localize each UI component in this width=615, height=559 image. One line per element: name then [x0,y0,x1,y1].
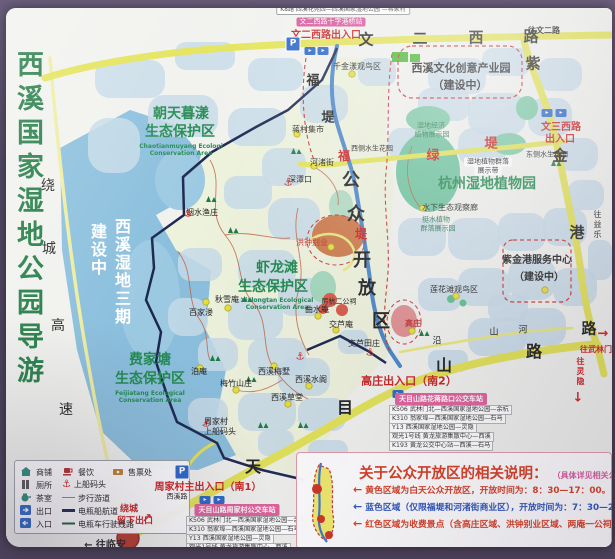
map-label-road: 区 [372,313,390,331]
entrance-exit-icon: ▸ [542,109,553,117]
map-label-place: 西溪水阁 [295,376,327,384]
legend-item-label: 出口 [36,506,52,517]
legend-item-label: 售票处 [128,467,152,478]
info-line-text: 红色区域为收费景点（含高庄区域、洪钟别业区域、两庵一公祠区域）。 [365,520,612,530]
map-label-place: 展示带 [475,167,502,176]
boat-dock-anchor-icon: ⚓ [366,348,375,359]
map-label-place: 泊庵 [191,368,207,376]
map-label-place: 西侧水生花园 [351,146,393,153]
map-label-road: 开 [353,252,371,270]
map-label-area: 朝天暮漾 [153,107,209,121]
map-label-road: 公 [342,172,360,190]
parking-icon: P [175,465,190,480]
map-label-area: 虾龙滩 [256,261,298,275]
map-poster: 西溪国家湿地公园导游图 文二西路往文二路紫金港路绿堤福堤福堤公众开放区天目山路沿… [6,8,612,547]
map-title: 西溪国家湿地公园导游图 [8,50,46,422]
entrance-exit-icon: ▸ [305,47,316,55]
boat-dock-anchor-icon: ⚓ [296,352,305,363]
map-label-place: 洪钟别业 [296,239,328,247]
legend-item-label: 电瓶车行驶线路 [78,519,134,530]
map-label-place: 西溪梅墅 [258,368,290,376]
map-label-place: 群落展示园 [421,226,456,233]
legend-item-label: 厕所 [36,480,52,491]
exit-icon [20,505,33,518]
map-label-place: 千金漾观鸟区 [333,63,381,71]
info-note: （具体详见相关公园公告） [553,471,612,480]
bus-station-header: 天目山路周家村公交车站 [195,504,280,516]
map-label-road: 路 [526,344,542,360]
legend-item: 入口 [20,518,52,531]
boat-dock-anchor-icon: ⚓ [202,419,211,430]
entrance-exit-icon: ▸ [200,496,211,504]
map-label-road: ↓ [573,392,584,405]
map-label-area: 杭州湿地植物园 [438,177,536,191]
map-label-road: 绿 [426,150,439,163]
map-label-area: Conservation Area [246,305,308,311]
map-label-place: 西溪草堂 [271,394,303,402]
map-label-gate: 高庄出入口（南2） [361,376,457,387]
entrance-exit-icon: ▸ [318,47,329,55]
map-label-gate: 周家村主出入口（南1） [155,483,262,493]
map-label-road: 往武林门 [580,346,612,354]
boat-dock-anchor-icon: ⚓ [184,209,193,220]
map-label-road: 福 [338,150,350,162]
info-line-text: 黄色区域为白天公众开放区，开放时间为：8：30—17：00。 [365,486,610,496]
map-label-place: 百家溇 [189,309,213,317]
map-label-road: 西 [468,31,483,46]
map-label-road: 路 [581,322,596,337]
ticket-icon [112,466,125,479]
bus-route-row: 观光1号线 黄龙旅游集散中心—西溪 [186,543,291,547]
info-arrow-icon: ← [353,517,362,530]
map-label-place: 湿地植物群落 [464,158,512,167]
map-label-area: 西溪文化创意产业园 [412,63,511,74]
map-label-road: ← 往临安 [84,541,126,547]
map-label-road: 山 [489,329,498,338]
map-label-road: 天 [245,459,261,475]
legend-item: 茶室 [20,492,52,505]
map-label-place: 水下生态观察廊 [422,204,478,212]
map-label-place: 河渚街 [310,159,334,167]
map-label-road: 河 [518,327,527,336]
bus-station-header: 天目山路花蒋路口公交车站 [395,393,487,405]
dock-icon: ⚓ [62,479,71,490]
map-label-road: 众 [347,206,365,224]
map-label-road: 紫 [525,57,540,72]
map-label-gate: 文二西路出入口 [291,31,361,41]
photo-background: 西溪国家湿地公园导游图 文二西路往文二路紫金港路绿堤福堤福堤公众开放区天目山路沿… [0,0,615,559]
map-label-road: 二 [412,32,427,47]
map-label-road: 往文二路 [528,27,560,35]
map-label-road: 山 [436,358,452,374]
map-label-place: 交芦田庄 [348,340,380,348]
entrance-exit-icon: ▸ [556,109,567,117]
map-label-place: 莲花滩观鸟区 [430,286,478,294]
legend-item: 厕所 [20,479,52,492]
legend-item: 餐饮 [62,466,94,479]
map-label-place: 东侧水生花园 [526,152,568,159]
map-label-road: 往灵隐 [576,357,584,387]
map-label-place: 曲水庵 [305,306,329,314]
info-line: ←黄色区域为白天公众开放区，开放时间为：8：30—17：00。 [353,483,610,496]
map-label-road: 堤 [355,228,367,240]
map-label-road: 堤 [484,138,497,151]
tea-icon [20,492,33,505]
shop-icon [20,466,33,479]
map-label-place: 蒋村集市 [292,126,324,134]
map-label-gate: 绕城 [120,506,138,515]
map-label-road: 福 [306,75,319,88]
info-line: ←蓝色区域（仅限福堤和河渚街商业区），开放时间为：7：30—21：00 [353,500,612,513]
map-label-place: 梅竹山庄 [220,380,252,388]
map-label-area: （建设中） [433,80,488,91]
map-label-road: 往益乐 [593,210,601,240]
map-label-road: 港 [569,226,584,241]
map-label-area: 生态保护区 [145,125,215,139]
walk-line-icon [62,492,75,505]
legend-item: 电瓶车行驶线路 [62,518,134,531]
info-line: ←红色区域为收费景点（含高庄区域、洪钟别业区域、两庵一公祠区域）。 [353,517,612,530]
dining-icon [62,466,75,479]
boat-line-icon [62,505,75,518]
info-title-row: 关于公众开放区的相关说明： （具体详见相关公园公告） [359,462,612,483]
entrance-exit-icon: ▸ [214,496,225,504]
info-arrow-icon: ← [353,500,362,513]
map-label-place: 厉杭二公祠 [322,299,357,306]
legend-item: 商铺 [20,466,52,479]
map-label-place: 交芦庵 [329,321,353,329]
public-area-info-box: 关于公众开放区的相关说明： （具体详见相关公园公告） ←黄色区域为白天公众开放区… [296,452,612,547]
info-line-text: 蓝色区域（仅限福堤和河渚街商业区），开放时间为：7：30—21：00 [365,503,612,513]
legend-item-label: 茶室 [36,493,52,504]
legend-item-label: 商铺 [36,467,52,478]
legend-item: 出口 [20,505,52,518]
map-label-road: → [598,328,609,341]
legend-item: ⚓上船码头 [62,479,106,490]
parking-icon: P [286,37,301,52]
map-label-road: 沿 [432,338,441,347]
map-label-area: 紫金港服务中心 [502,256,572,266]
map-badge: K8路 西溪花苑西—西溪国家湿地公园 —蒋家村 [276,8,410,15]
legend-item-label: 上船码头 [74,479,106,490]
map-label-area: 建设中 [89,223,105,277]
entrance-icon [20,518,33,531]
boat-dock-anchor-icon: ⚓ [284,178,293,189]
bus-route-row: K193 黄龙公交中心站—西溪—石马 [389,441,493,451]
map-label-road: 目 [337,400,353,416]
map-label-place: 挺水植物 [422,217,450,224]
info-arrow-icon: ← [353,483,362,496]
map-label-place: 秋雪庵 [215,296,239,304]
map-label-place: 湿地经济 [417,123,445,130]
map-label-area: Conservation Area [150,151,212,157]
map-label-area: （建设中） [514,273,564,283]
legend-item-label: 步行游道 [78,493,110,504]
legend-item: 电瓶船航道 [62,505,118,518]
map-label-place: 高庄 [405,320,421,328]
legend-item-label: 餐饮 [78,467,94,478]
map-label-place: 植物展示园 [415,132,450,139]
map-label-gate: 文三西路 [541,123,581,133]
map-label-area: 生态保护区 [238,280,308,294]
map-label-place: 西溪路 [167,494,188,501]
map-label-area: 生态保护区 [115,372,185,386]
map-stage: 西溪国家湿地公园导游图 文二西路往文二路紫金港路绿堤福堤福堤公众开放区天目山路沿… [6,8,612,547]
legend-item: 步行游道 [62,492,110,505]
legend-item: 售票处 [112,466,152,479]
map-label-road: 放 [358,280,376,298]
cart-line-icon [62,518,75,531]
map-label-area: 费家塘 [129,353,171,367]
info-sketch-map [303,461,351,545]
info-title: 关于公众开放区的相关说明： [359,466,548,482]
map-label-road: 高 [51,319,65,333]
toilet-icon [20,479,33,492]
legend-item-label: 电瓶船航道 [78,506,118,517]
legend-item-label: 入口 [36,519,52,530]
map-label-area: Conservation Area [119,398,181,404]
map-label-area: 西溪湿地三期 [113,218,129,326]
map-label-road: 堤 [321,112,334,125]
map-label-road: 速 [59,403,73,417]
map-label-gate: 出入口 [545,135,575,145]
map-badge: 文二西路十字港桥站 [297,18,366,27]
